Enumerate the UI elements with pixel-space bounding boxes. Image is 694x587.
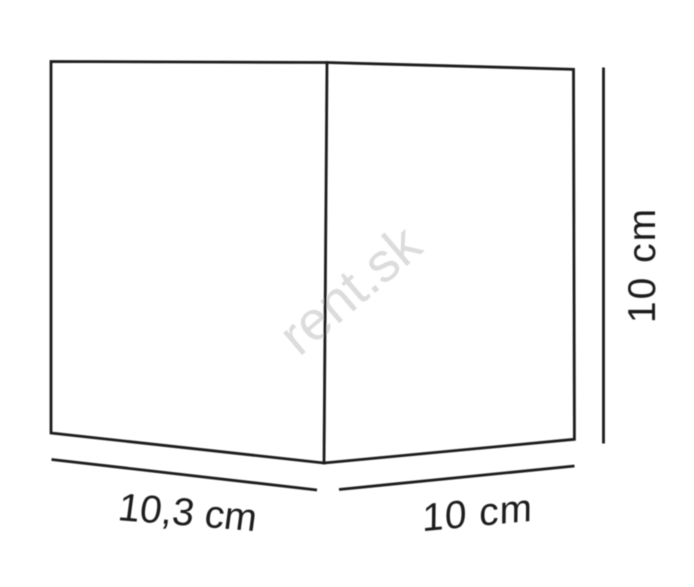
svg-text:10 cm: 10 cm [422,487,533,541]
svg-text:10,3 cm: 10,3 cm [116,486,260,540]
svg-text:rent.sk: rent.sk [267,212,433,367]
svg-text:10 cm: 10 cm [621,207,664,323]
